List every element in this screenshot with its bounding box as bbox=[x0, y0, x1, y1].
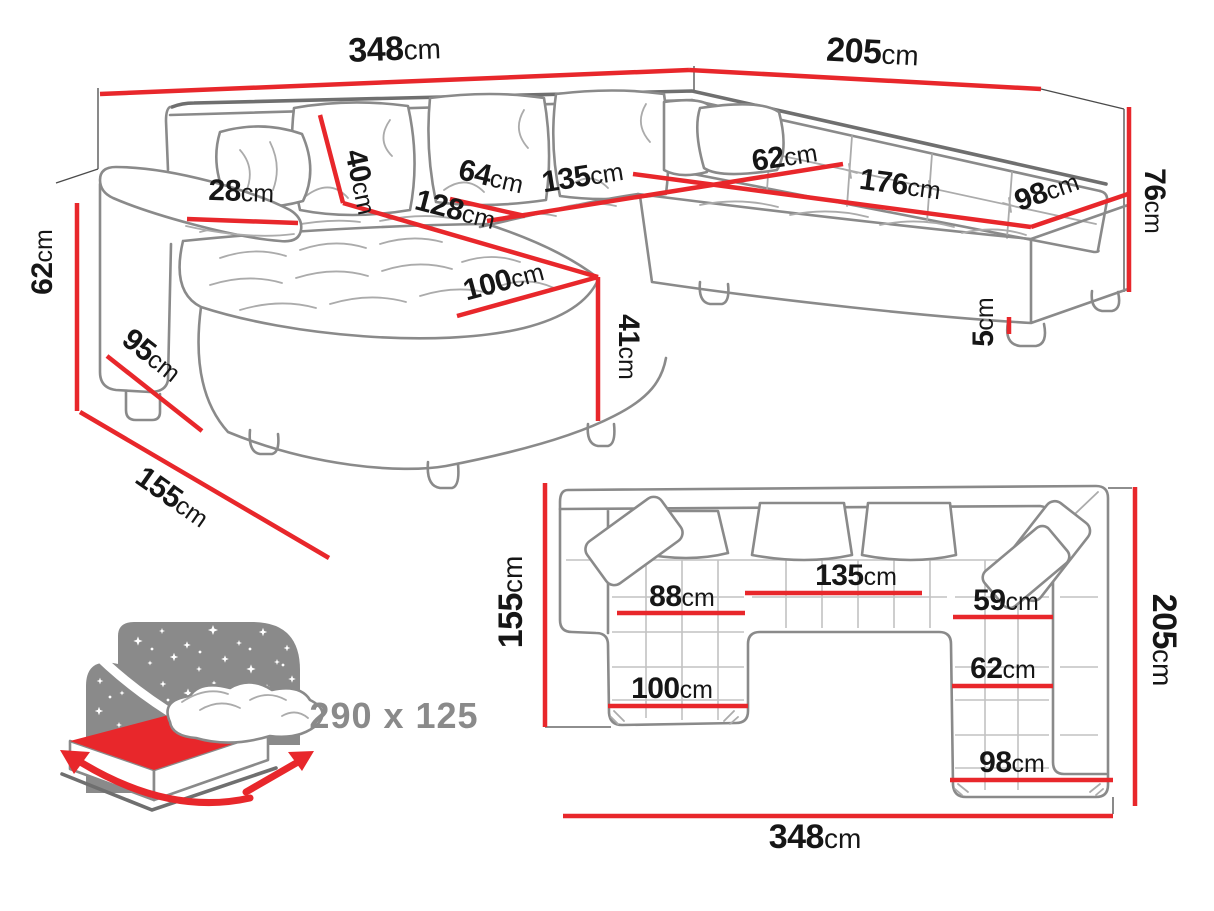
plan-59-label: 59cm bbox=[973, 584, 1039, 617]
dim-62-left-label: 62cm bbox=[26, 229, 59, 295]
plan-62-label: 62cm bbox=[970, 652, 1036, 685]
plan-348-label: 348cm bbox=[769, 818, 862, 856]
dim-41-label: 41cm bbox=[612, 314, 645, 380]
plan-dimension-labels: 155cm 205cm 348cm 88cm 135cm 59cm 100cm … bbox=[492, 556, 1183, 856]
plan-100-label: 100cm bbox=[631, 672, 713, 705]
plan-205-label: 205cm bbox=[1145, 594, 1183, 687]
dim-205-label: 205cm bbox=[825, 31, 919, 74]
perspective-view: 348cm 205cm 62cm 95cm 155cm 28cm 40cm 64… bbox=[26, 28, 1171, 558]
dim-line-205 bbox=[689, 70, 1041, 89]
dim-155-label: 155cm bbox=[129, 460, 215, 534]
dim-95-label: 95cm bbox=[116, 322, 188, 388]
dim-100-label: 100cm bbox=[460, 254, 548, 307]
bed-sleeping-function-icon bbox=[60, 622, 323, 810]
sleeping-area: 290 x 125 bbox=[60, 622, 479, 810]
dim-76-label: 76cm bbox=[1138, 168, 1171, 234]
dim-28-label: 28cm bbox=[208, 174, 275, 209]
sleeping-size-label: 290 x 125 bbox=[309, 695, 478, 736]
plan-view: 155cm 205cm 348cm 88cm 135cm 59cm 100cm … bbox=[492, 483, 1183, 856]
dim-5-label: 5cm bbox=[967, 297, 1000, 347]
sofa-line-art bbox=[100, 91, 1128, 489]
plan-155-label: 155cm bbox=[492, 556, 530, 649]
dim-line-155 bbox=[80, 412, 329, 558]
plan-135-label: 135cm bbox=[815, 559, 897, 592]
plan-98-label: 98cm bbox=[979, 746, 1045, 779]
dim-348-label: 348cm bbox=[348, 28, 442, 70]
plan-88-label: 88cm bbox=[649, 580, 715, 613]
sofa-dimensions-diagram: 348cm 205cm 62cm 95cm 155cm 28cm 40cm 64… bbox=[0, 0, 1214, 911]
diagram-canvas: 348cm 205cm 62cm 95cm 155cm 28cm 40cm 64… bbox=[0, 0, 1214, 911]
